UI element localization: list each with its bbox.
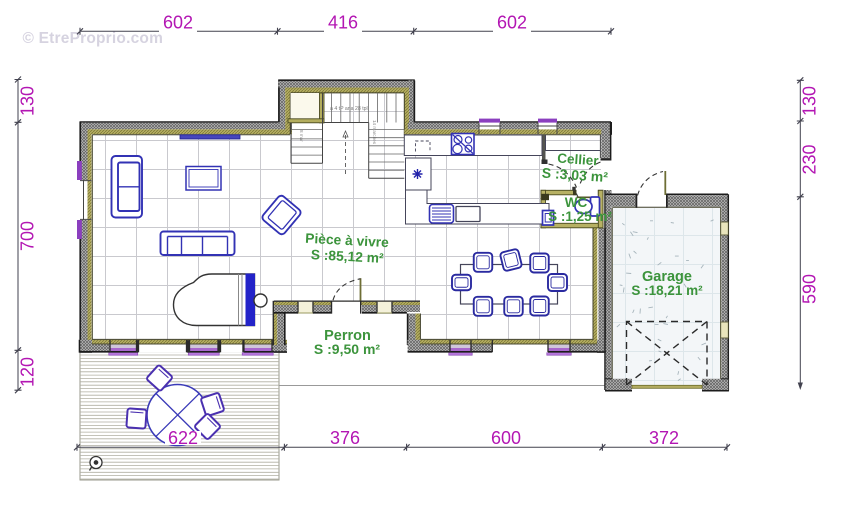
svg-text:130: 130 <box>18 86 38 116</box>
svg-text:120: 120 <box>18 357 38 387</box>
svg-text:602: 602 <box>163 13 193 33</box>
svg-text:130: 130 <box>800 86 820 116</box>
svg-text:14 marches: 14 marches <box>372 120 377 145</box>
svg-text:230: 230 <box>800 144 820 174</box>
svg-text:602: 602 <box>497 13 527 33</box>
svg-text:416: 416 <box>328 13 358 33</box>
svg-text:S :18,21 m²: S :18,21 m² <box>631 283 703 298</box>
svg-text:622: 622 <box>168 428 198 448</box>
svg-text:S :1,25 m²: S :1,25 m² <box>548 209 612 224</box>
svg-text:590: 590 <box>800 274 820 304</box>
svg-text:8 mar: 8 mar <box>299 130 304 142</box>
svg-text:700: 700 <box>18 221 38 251</box>
svg-text:376: 376 <box>330 428 360 448</box>
svg-text:© EtreProprio.com: © EtreProprio.com <box>23 30 164 47</box>
svg-text:600: 600 <box>491 428 521 448</box>
svg-text:372: 372 <box>649 428 679 448</box>
svg-text:a 4 tP ana 28 tpl: a 4 tP ana 28 tpl <box>330 106 368 112</box>
svg-text:S :9,50 m²: S :9,50 m² <box>314 341 380 357</box>
svg-text:WC: WC <box>565 195 588 210</box>
